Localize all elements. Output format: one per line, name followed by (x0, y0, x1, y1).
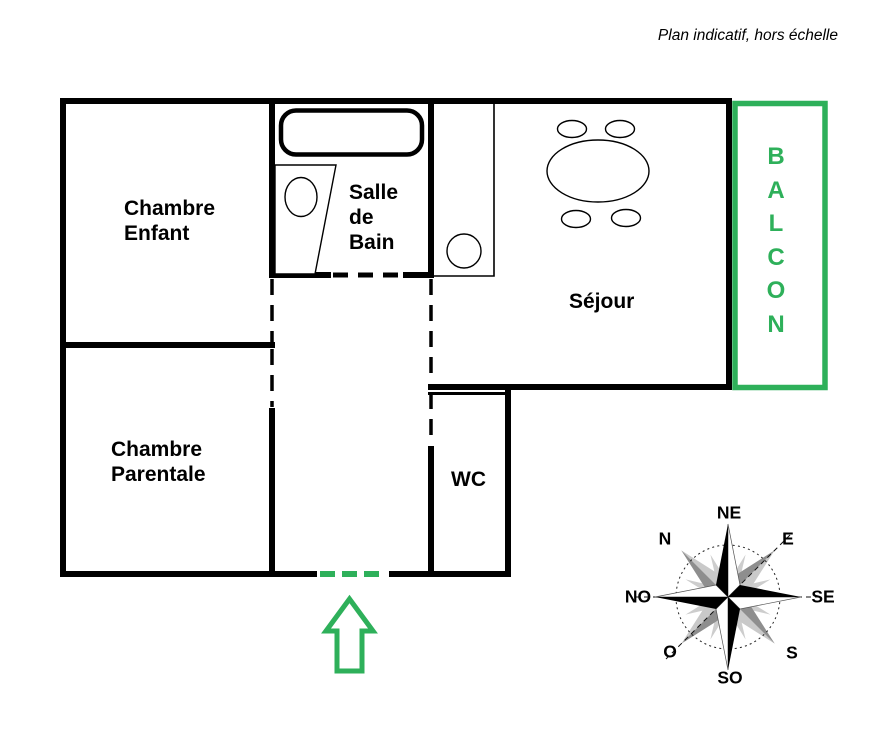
dashed-partitions (272, 279, 431, 445)
room-label-chambre-enfant: Chambre Enfant (124, 196, 215, 246)
chair-icon (612, 210, 641, 227)
room-label-wc: WC (451, 467, 486, 492)
balcony-letter: A (767, 174, 786, 208)
compass-main-points (655, 524, 801, 670)
bathtub-icon (281, 111, 422, 155)
chair-icon (558, 121, 587, 138)
room-label-sejour: Séjour (569, 289, 634, 314)
dining-set-icon (547, 121, 649, 228)
compass-label-o: O (663, 642, 677, 663)
compass-label-s: S (786, 643, 798, 664)
entrance-arrow-icon (326, 599, 373, 671)
balcony-letter: C (767, 241, 786, 275)
floor-plan-drawing (0, 0, 890, 732)
dining-table-icon (547, 140, 649, 202)
balcony-letter: N (767, 308, 786, 342)
room-label-salle-de-bain: Salle de Bain (349, 180, 398, 255)
compass-label-se: SE (811, 587, 834, 608)
floor-plan: Plan indicatif, hors échelle Chambre Enf… (0, 0, 890, 732)
balcony-letter: O (767, 274, 786, 308)
compass-label-so: SO (717, 668, 742, 689)
compass-label-no: NO (625, 587, 651, 608)
room-label-chambre-parentale: Chambre Parentale (111, 437, 206, 487)
balcony-label: B A L C O N (767, 140, 786, 341)
chair-icon (562, 211, 591, 228)
plan-note: Plan indicatif, hors échelle (658, 27, 838, 45)
compass-label-e: E (782, 529, 794, 550)
kitchen-sink-icon (447, 234, 481, 268)
balcony-letter: L (767, 207, 786, 241)
compass-label-ne: NE (717, 503, 741, 524)
balcony-letter: B (767, 140, 786, 174)
chair-icon (606, 121, 635, 138)
compass-label-n: N (659, 529, 672, 550)
bathroom-sink-icon (285, 178, 317, 217)
